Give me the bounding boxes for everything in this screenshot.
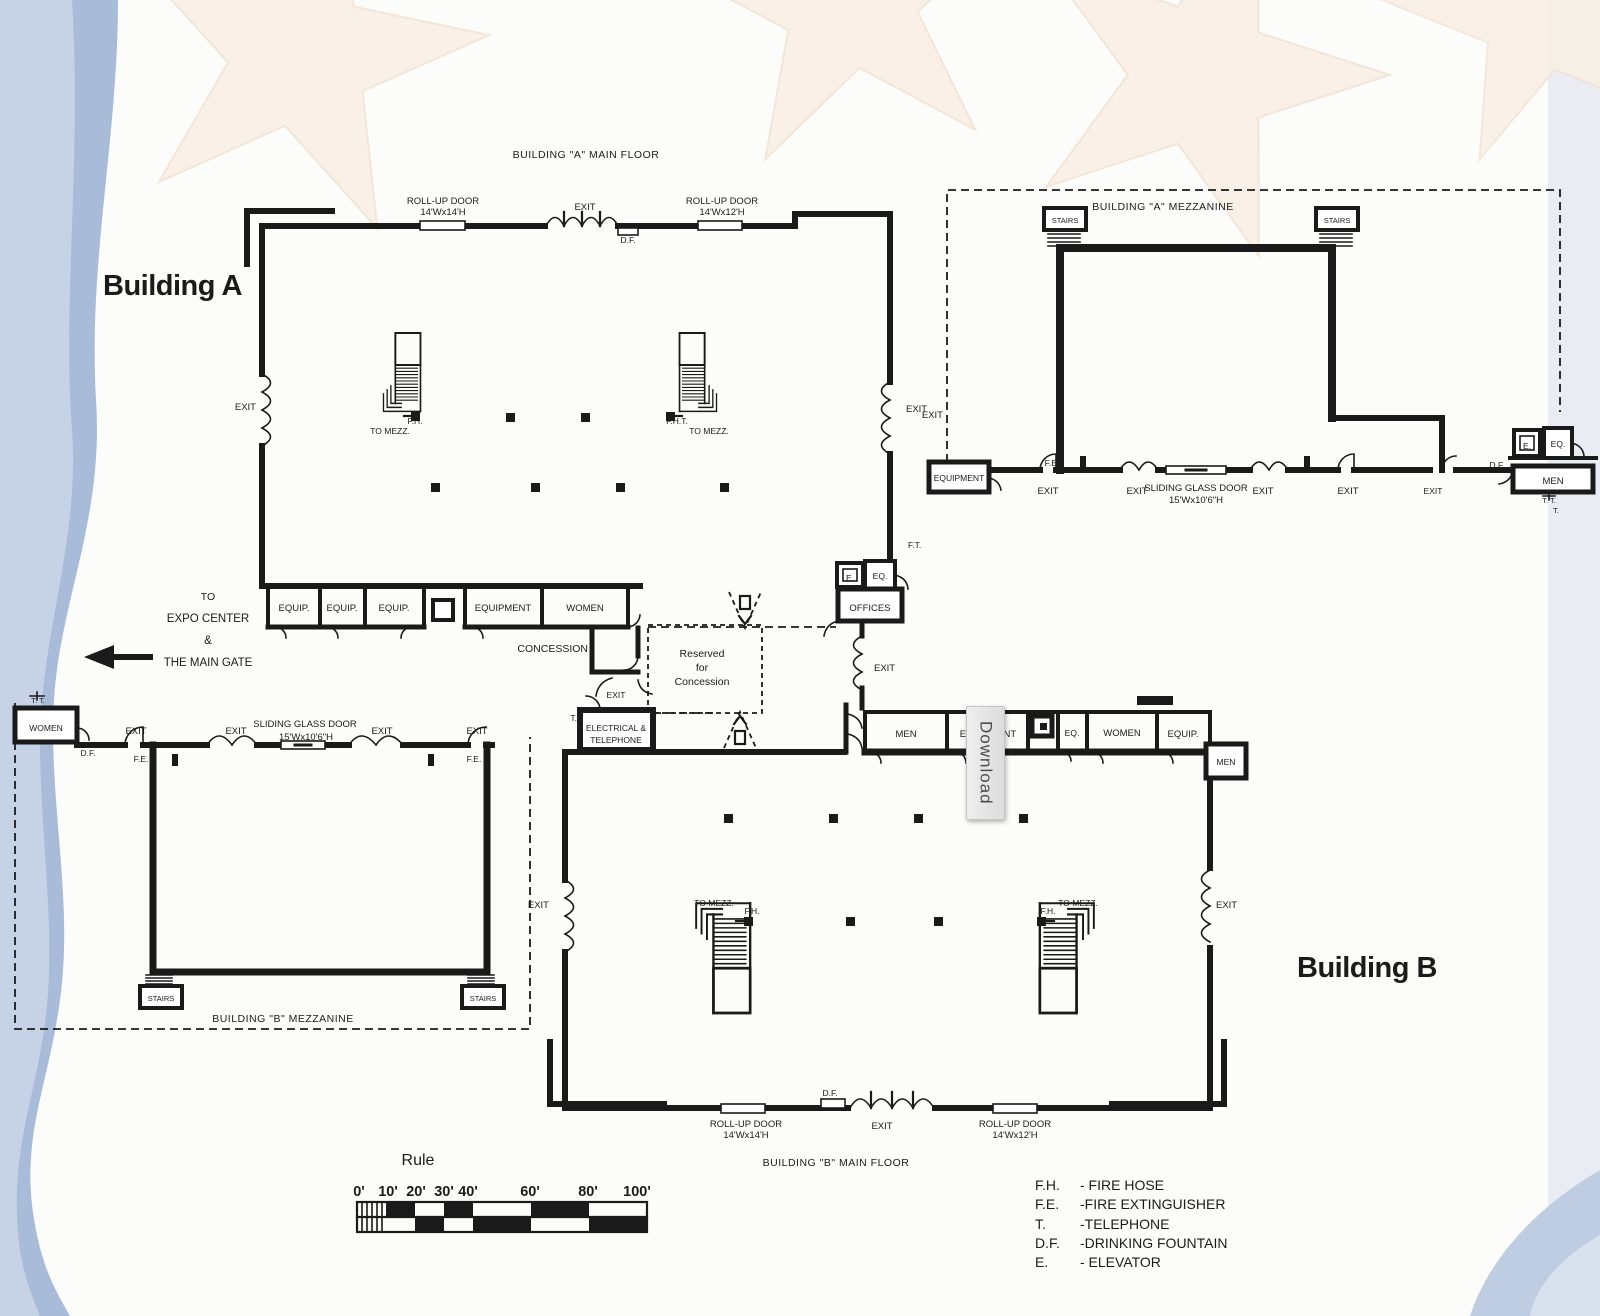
fire-hose-icon — [744, 917, 753, 926]
left-wave-band-light — [0, 0, 75, 1316]
cone-marker-icon — [729, 592, 761, 628]
exit-label: EXIT — [528, 900, 549, 911]
stairs-to-mezzanine — [1040, 903, 1094, 1013]
room-label: EQUIP. — [1168, 729, 1199, 740]
legend: F.H. - FIRE HOSE F.E. -FIRE EXTINGUISHER… — [1035, 1177, 1228, 1270]
legend-abbr: F.E. — [1035, 1196, 1059, 1212]
exit-label: EXIT — [1252, 486, 1273, 497]
reserved-for-concession: Reserved for Concession — [648, 592, 762, 748]
room-label: MEN — [1217, 757, 1236, 767]
expo-line: EXPO CENTER — [167, 613, 249, 625]
floor-plan-page: BUILDING "A" MAIN FLOOR Building A ROLL-… — [0, 0, 1600, 1316]
stairs-to-mezzanine — [696, 903, 750, 1013]
column — [1304, 456, 1310, 468]
building-b-mezzanine: BUILDING "B" MEZZANINE WOMEN T. T. D.F. … — [15, 692, 530, 1029]
sgd-size: 15'Wx10'6"H — [1169, 495, 1223, 506]
roll-up-door — [721, 1104, 765, 1113]
exit-label: EXIT — [1424, 486, 1443, 496]
exit-door-arcs — [262, 374, 271, 446]
scale-bar — [357, 1202, 647, 1232]
right-band — [1548, 0, 1600, 1316]
door-size: 14'Wx14'H — [723, 1130, 768, 1141]
stairs-to-mezzanine — [680, 333, 717, 411]
elevator-label: E. — [1523, 441, 1531, 451]
rule-tick: 20' — [406, 1184, 426, 1200]
rule-scale: Rule 0' 10' 20' 30' 40' 60' 80' 100' — [353, 1152, 651, 1232]
stairs-label: STAIRS — [1052, 216, 1079, 225]
roll-up-door — [420, 221, 465, 230]
eq-label: EQ. — [873, 571, 888, 581]
exit-label: EXIT — [874, 663, 895, 674]
left-arrow-icon — [84, 645, 114, 669]
elevator-label: E. — [846, 573, 854, 583]
room-label: TELEPHONE — [590, 735, 642, 745]
legend-name: -FIRE EXTINGUISHER — [1080, 1196, 1225, 1212]
exit-label: EXIT — [1216, 900, 1237, 911]
door-label: ROLL-UP DOOR — [710, 1119, 782, 1130]
room-label: EQUIP. — [279, 603, 310, 614]
stairs-label: STAIRS — [470, 994, 497, 1003]
room-label: MEN — [1542, 476, 1563, 487]
room-label: WOMEN — [29, 723, 63, 733]
column — [172, 754, 178, 766]
exit-label: EXIT — [371, 726, 392, 737]
exit-door-arcs — [882, 382, 891, 454]
df-label: D.F. — [822, 1088, 837, 1098]
door-label: ROLL-UP DOOR — [407, 196, 479, 207]
room-label: ELECTRICAL & — [586, 723, 646, 733]
rule-tick: 60' — [520, 1184, 540, 1200]
legend-abbr: E. — [1035, 1254, 1048, 1270]
column-box — [433, 600, 453, 620]
offices-label: OFFICES — [849, 603, 890, 614]
room-label: EQUIP. — [327, 603, 358, 614]
exit-label: EXIT — [922, 410, 943, 421]
building-a-main-floor-caption: BUILDING "A" MAIN FLOOR — [513, 149, 660, 161]
ft-label: F.T. — [908, 540, 921, 550]
building-b-title: Building B — [1297, 952, 1437, 984]
expo-line: & — [204, 635, 212, 647]
exit-door-arcs — [565, 880, 574, 952]
exit-label: EXIT — [466, 726, 487, 737]
eq-label: EQ. — [1551, 439, 1566, 449]
legend-name: -DRINKING FOUNTAIN — [1080, 1235, 1228, 1251]
room-label: WOMEN — [566, 603, 604, 614]
sgd-label: SLIDING GLASS DOOR — [253, 719, 357, 730]
stairs-label: STAIRS — [148, 994, 175, 1003]
roll-up-door — [993, 1104, 1037, 1113]
door-size: 14'Wx12'H — [992, 1130, 1037, 1141]
legend-abbr: D.F. — [1035, 1235, 1060, 1251]
fht-label: F.H.T. — [666, 416, 688, 426]
legend-name: - FIRE HOSE — [1080, 1177, 1164, 1193]
columns — [724, 814, 1028, 926]
fire-hose-icon — [1037, 917, 1046, 926]
expo-direction: TO EXPO CENTER & THE MAIN GATE — [84, 591, 253, 669]
to-mezz-label: TO MEZZ. — [370, 426, 410, 436]
fh-label: F.H. — [407, 416, 422, 426]
offices-block: E. EQ. OFFICES EXIT — [824, 561, 908, 708]
drinking-fountain — [821, 1099, 845, 1108]
star-decorations — [91, 0, 1600, 277]
telephone-label: T. T. — [31, 696, 45, 705]
concession-label: CONCESSION — [517, 643, 588, 655]
exit-label: EXIT — [1037, 486, 1058, 497]
rule-tick: 0' — [353, 1184, 365, 1200]
legend-name: -TELEPHONE — [1080, 1216, 1169, 1232]
legend-abbr: T. — [1035, 1216, 1046, 1232]
telephone-label: T. — [1553, 506, 1559, 515]
fh-label: F.H. — [744, 906, 759, 916]
fh-label: F.H. — [1040, 906, 1055, 916]
legend-name: - ELEVATOR — [1080, 1254, 1161, 1270]
room-label: MEN — [895, 729, 916, 740]
rule-tick: 80' — [578, 1184, 598, 1200]
exit-label: EXIT — [1337, 486, 1358, 497]
df-label: D.F. — [80, 748, 95, 758]
building-a-title: Building A — [103, 270, 242, 302]
reserved-line: Reserved — [680, 648, 725, 660]
df-label: D.F. — [620, 235, 635, 245]
exit-door-arcs — [854, 636, 863, 690]
reserved-line: Concession — [675, 676, 730, 688]
column — [1080, 456, 1086, 468]
room-label: EQUIP. — [379, 603, 410, 614]
telephone-label: T. — [570, 713, 577, 723]
door-size: 14'Wx14'H — [420, 207, 465, 218]
corner-pilaster — [550, 1042, 1224, 1104]
door-label: ROLL-UP DOOR — [979, 1119, 1051, 1130]
rule-tick: 10' — [378, 1184, 398, 1200]
floor-plan-svg: BUILDING "A" MAIN FLOOR Building A ROLL-… — [0, 0, 1600, 1316]
building-a-service-rooms: EQUIP. EQUIP. EQUIP. EQUIPMENT WOMEN — [268, 586, 640, 638]
df-label: D.F. — [1489, 460, 1504, 470]
exit-label: EXIT — [574, 202, 595, 213]
building-b-main-floor-caption: BUILDING "B" MAIN FLOOR — [763, 1157, 910, 1169]
door-size: 14'Wx12'H — [699, 207, 744, 218]
expo-line: TO — [201, 591, 215, 603]
star-icon — [655, 0, 1040, 168]
stairs-label: STAIRS — [1324, 216, 1351, 225]
rule-title: Rule — [402, 1152, 435, 1169]
room-label: EQUIPMENT — [934, 473, 985, 483]
sgd-label: SLIDING GLASS DOOR — [1144, 483, 1248, 494]
exit-label: EXIT — [225, 726, 246, 737]
fe-label: F.E. — [134, 754, 149, 764]
to-mezz-label: TO MEZZ. — [1058, 898, 1098, 908]
drinking-fountain — [618, 228, 638, 235]
pilaster — [1137, 696, 1173, 705]
building-b-mezzanine-caption: BUILDING "B" MEZZANINE — [212, 1013, 354, 1025]
legend-abbr: F.H. — [1035, 1177, 1060, 1193]
column — [428, 754, 434, 766]
exit-label: EXIT — [125, 726, 146, 737]
door-label: ROLL-UP DOOR — [686, 196, 758, 207]
rule-tick: 100' — [623, 1184, 651, 1200]
concession-area: CONCESSION EXIT — [517, 628, 652, 700]
building-a-mezzanine-caption: BUILDING "A" MEZZANINE — [1092, 201, 1234, 213]
rule-tick: 30' — [434, 1184, 454, 1200]
reserved-line: for — [696, 662, 709, 674]
cone-marker-icon — [724, 712, 756, 748]
download-button[interactable]: Download — [966, 706, 1005, 820]
star-icon — [981, 0, 1431, 277]
exit-label: EXIT — [607, 690, 626, 700]
to-mezz-label: TO MEZZ. — [689, 426, 729, 436]
fe-label: F.E. — [1045, 458, 1060, 468]
room-label: WOMEN — [1103, 728, 1141, 739]
expo-line: THE MAIN GATE — [164, 657, 253, 669]
to-mezz-label: TO MEZZ. — [694, 898, 734, 908]
roll-up-door — [698, 221, 742, 230]
exit-label: EXIT — [871, 1121, 892, 1132]
sgd-size: 15'Wx10'6"H — [279, 732, 333, 743]
exit-door-arcs — [1202, 870, 1211, 942]
fe-label: F.E. — [467, 754, 482, 764]
rule-tick: 40' — [458, 1184, 478, 1200]
room-label: EQ. — [1065, 728, 1080, 738]
stairs-to-mezzanine — [383, 333, 420, 411]
room-label: EQUIPMENT — [475, 603, 532, 614]
exit-label: EXIT — [235, 402, 256, 413]
